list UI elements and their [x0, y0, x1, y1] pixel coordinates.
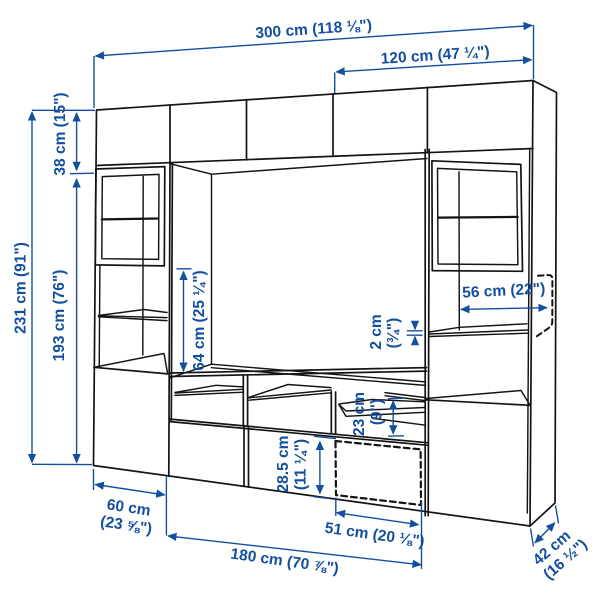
svg-text:180 cm (70 ⅞"): 180 cm (70 ⅞") — [229, 546, 339, 578]
svg-text:(¾"): (¾") — [385, 318, 402, 349]
svg-text:56 cm (22"): 56 cm (22") — [462, 280, 546, 301]
svg-text:38 cm (15"): 38 cm (15") — [52, 92, 69, 175]
svg-text:(11 ¼"): (11 ¼") — [293, 439, 310, 490]
svg-text:28.5 cm: 28.5 cm — [275, 436, 292, 493]
svg-text:51 cm (20 ⅛"): 51 cm (20 ⅛") — [324, 520, 426, 551]
svg-text:231 cm (91"): 231 cm (91") — [13, 242, 30, 334]
svg-text:120 cm (47 ¼"): 120 cm (47 ¼") — [380, 43, 490, 68]
svg-text:193 cm (76"): 193 cm (76") — [51, 270, 68, 362]
svg-text:64 cm (25 ¼"): 64 cm (25 ¼") — [191, 270, 208, 370]
svg-text:2 cm: 2 cm — [368, 314, 385, 349]
svg-text:23 cm: 23 cm — [351, 392, 368, 436]
svg-text:(9"): (9") — [369, 399, 386, 425]
